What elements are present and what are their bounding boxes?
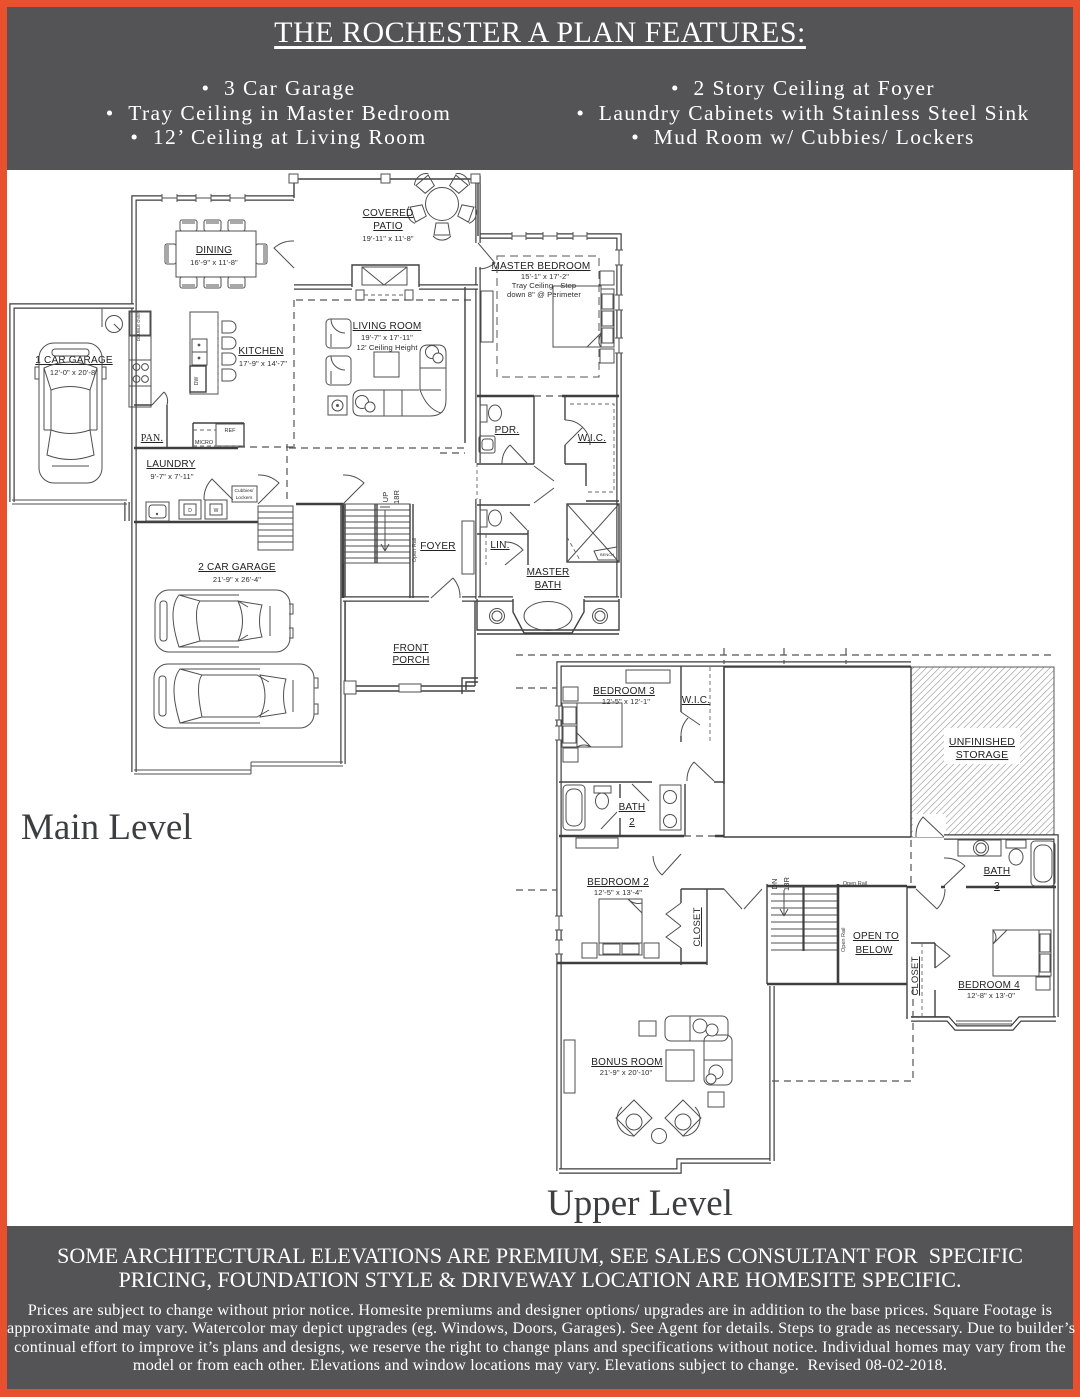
svg-text:DINING: DINING: [196, 245, 232, 256]
svg-text:KITCHEN: KITCHEN: [238, 346, 283, 357]
svg-text:2: 2: [629, 817, 635, 828]
svg-text:FRONT: FRONT: [393, 643, 428, 654]
svg-text:18R: 18R: [782, 876, 791, 891]
svg-text:LIVING ROOM: LIVING ROOM: [353, 321, 422, 332]
svg-text:UP: UP: [381, 492, 390, 503]
svg-text:12'-0" x 20'-8": 12'-0" x 20'-8": [50, 368, 98, 377]
svg-text:12'-5" x 12'-1": 12'-5" x 12'-1": [602, 697, 650, 706]
svg-text:16'-9" x 11'-8": 16'-9" x 11'-8": [190, 258, 238, 267]
svg-text:UNFINISHED: UNFINISHED: [949, 736, 1015, 748]
svg-text:MASTER BEDROOM: MASTER BEDROOM: [492, 261, 591, 272]
svg-text:OPEN TO: OPEN TO: [853, 931, 899, 942]
svg-text:21'-9" x 20'-10": 21'-9" x 20'-10": [600, 1068, 653, 1077]
svg-text:PORCH: PORCH: [392, 655, 429, 666]
svg-text:down 8" @ Perimeter: down 8" @ Perimeter: [507, 290, 581, 299]
svg-text:21'-9" x 26'-4": 21'-9" x 26'-4": [213, 575, 261, 584]
svg-text:REF: REF: [225, 428, 237, 434]
svg-text:Open Rail: Open Rail: [843, 881, 867, 887]
svg-text:PDR.: PDR.: [495, 425, 520, 436]
svg-text:BATH: BATH: [619, 802, 646, 813]
svg-text:Lockers: Lockers: [236, 495, 253, 501]
svg-text:W.I.C.: W.I.C.: [682, 695, 710, 706]
svg-text:BEDROOM 3: BEDROOM 3: [593, 686, 655, 697]
svg-text:3: 3: [994, 881, 1000, 892]
svg-text:2 CAR GARAGE: 2 CAR GARAGE: [198, 562, 276, 573]
svg-text:BELOW: BELOW: [855, 945, 892, 956]
svg-text:18R: 18R: [392, 489, 401, 504]
svg-text:D: D: [188, 508, 192, 514]
svg-text:CLOSET: CLOSET: [910, 956, 921, 995]
svg-text:Cubbies/: Cubbies/: [235, 488, 255, 494]
svg-text:BEDROOM 4: BEDROOM 4: [958, 980, 1020, 991]
svg-text:MASTER: MASTER: [527, 567, 570, 578]
svg-text:CLOSET: CLOSET: [692, 907, 703, 946]
svg-text:PATIO: PATIO: [373, 221, 403, 232]
svg-text:W.I.C.: W.I.C.: [578, 433, 606, 444]
svg-text:12'-5" x 13'-4": 12'-5" x 13'-4": [594, 888, 642, 897]
svg-text:DW: DW: [194, 377, 200, 386]
svg-text:12'-8" x 13'-0": 12'-8" x 13'-0": [967, 991, 1015, 1000]
svg-text:BATH: BATH: [984, 866, 1011, 877]
svg-text:1 CAR GARAGE: 1 CAR GARAGE: [35, 355, 113, 366]
svg-text:BENCH: BENCH: [600, 552, 614, 557]
svg-text:COVERED: COVERED: [363, 208, 414, 219]
svg-text:BEDROOM 2: BEDROOM 2: [587, 877, 649, 888]
svg-text:17'-9" x 14'-7": 17'-9" x 14'-7": [239, 359, 287, 368]
svg-text:Open Rail: Open Rail: [841, 928, 847, 952]
svg-text:BONUS ROOM: BONUS ROOM: [591, 1057, 662, 1068]
svg-text:BATH: BATH: [535, 580, 562, 591]
svg-text:19'-7" x 17'-11": 19'-7" x 17'-11": [361, 333, 413, 342]
svg-text:W: W: [214, 508, 219, 514]
svg-text:DOUBLE OVEN: DOUBLE OVEN: [136, 311, 141, 341]
svg-text:STORAGE: STORAGE: [956, 749, 1009, 761]
svg-text:LIN.: LIN.: [490, 540, 509, 551]
svg-text:MICRO: MICRO: [195, 440, 214, 446]
svg-text:19'-11" x 11'-8": 19'-11" x 11'-8": [362, 234, 414, 243]
svg-text:9'-7" x 7'-11": 9'-7" x 7'-11": [150, 472, 194, 481]
svg-text:DN: DN: [770, 878, 779, 889]
svg-text:12' Ceiling Height: 12' Ceiling Height: [356, 343, 418, 352]
svg-text:FOYER: FOYER: [420, 541, 455, 552]
svg-text:LAUNDRY: LAUNDRY: [146, 459, 195, 470]
svg-text:15'-1" x 17'-2": 15'-1" x 17'-2": [521, 272, 569, 281]
svg-text:Open Rail: Open Rail: [412, 538, 418, 562]
svg-text:PAN.: PAN.: [141, 433, 163, 444]
